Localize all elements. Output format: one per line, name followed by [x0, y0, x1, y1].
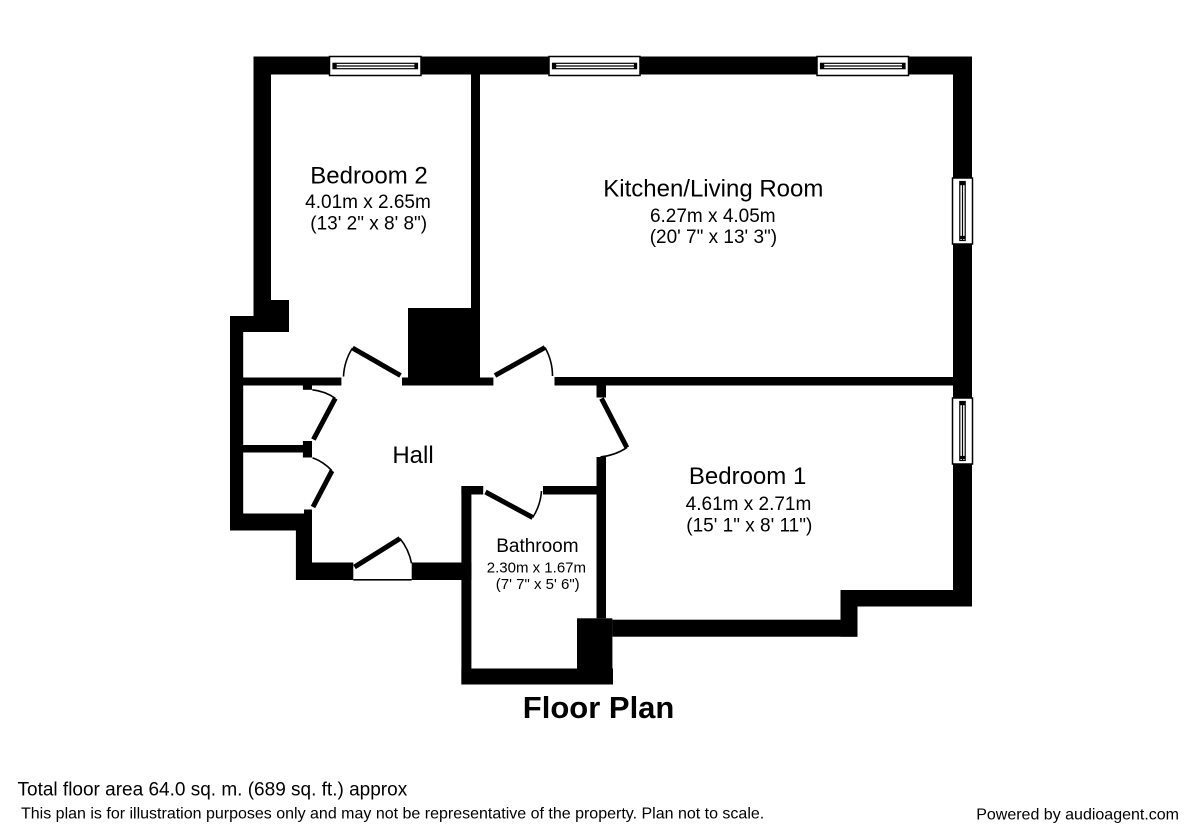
svg-text:4.61m x 2.71m: 4.61m x 2.71m — [686, 494, 812, 515]
svg-text:4.01m x 2.65m: 4.01m x 2.65m — [305, 192, 431, 213]
svg-text:Bathroom: Bathroom — [496, 536, 578, 557]
svg-text:This plan is for illustration: This plan is for illustration purposes o… — [21, 806, 764, 823]
svg-text:(15' 1" x 8' 11"): (15' 1" x 8' 11") — [686, 516, 812, 537]
svg-text:(7' 7" x 5' 6"): (7' 7" x 5' 6") — [496, 576, 580, 593]
svg-text:Total floor area 64.0 sq. m. (: Total floor area 64.0 sq. m. (689 sq. ft… — [18, 780, 408, 801]
svg-text:(13' 2" x 8' 8"): (13' 2" x 8' 8") — [310, 214, 427, 235]
svg-text:Kitchen/Living Room: Kitchen/Living Room — [603, 176, 823, 203]
svg-text:6.27m x 4.05m: 6.27m x 4.05m — [650, 206, 776, 227]
svg-text:Bedroom 1: Bedroom 1 — [689, 463, 806, 490]
svg-text:Hall: Hall — [392, 442, 433, 469]
svg-text:Powered by audioagent.com: Powered by audioagent.com — [976, 807, 1179, 824]
svg-text:Bedroom 2: Bedroom 2 — [310, 163, 427, 190]
svg-text:(20' 7" x 13' 3"): (20' 7" x 13' 3") — [650, 227, 777, 248]
svg-text:Floor Plan: Floor Plan — [523, 690, 675, 725]
svg-text:2.30m x 1.67m: 2.30m x 1.67m — [487, 560, 586, 577]
